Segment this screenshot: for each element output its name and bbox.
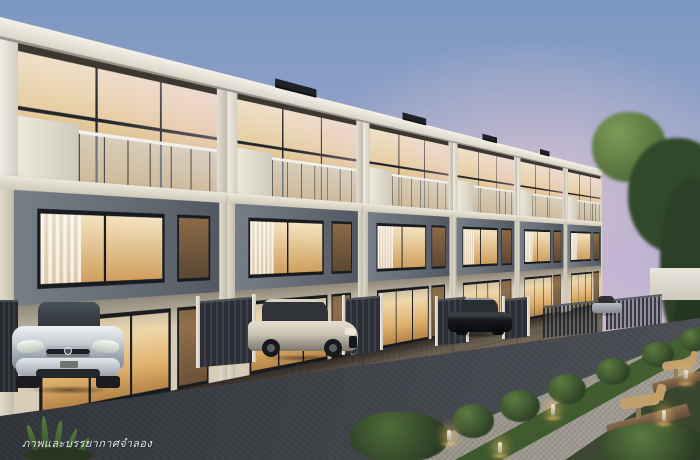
headlight [345,327,357,335]
balcony-parapet [521,189,533,216]
rider-head [654,383,667,401]
brand-emblem [64,347,72,355]
window-mullion [104,216,106,281]
curtain [250,221,273,274]
window-mullion [480,230,481,265]
balcony-column [601,176,603,221]
curtain [525,231,533,262]
bollard-light [684,370,688,379]
pilaster [363,212,368,282]
balcony-parapet [237,148,272,196]
wheel [456,326,468,335]
pilaster [453,217,456,276]
small-window [553,230,561,262]
balcony-column [517,157,520,215]
window-mullion [402,227,403,268]
pilaster [219,203,227,292]
grille [349,336,357,348]
hedge-bush [452,404,494,438]
spring-rider-toy [654,348,700,380]
townhome-render-scene: ภาพและบรรยากาศจำลอง [0,0,700,460]
bollard-light [447,430,451,441]
car-shadow [246,353,362,363]
small-window [593,232,599,261]
curtain [378,226,393,269]
rider-spring [636,408,641,419]
balcony-column [227,91,237,193]
third-floor-balcony [565,168,602,221]
wheel [96,376,120,388]
gate-post [196,296,200,368]
shrub [598,424,700,460]
balcony-parapet [369,167,392,205]
rider-spring [674,369,678,378]
champagne-sedan-car [248,295,358,365]
gate-post [380,293,383,350]
gate-post [435,296,438,346]
balcony-column [217,89,227,193]
glass-balustrade [577,200,601,222]
small-window [331,221,352,274]
second-floor [517,221,565,271]
shrub [350,412,448,460]
bedroom-window [248,217,323,278]
wheel [324,339,342,357]
pilaster [601,226,603,265]
balcony-parapet [568,196,577,220]
silver-convertible-car [12,300,124,392]
bedroom-window [524,229,550,264]
bedroom-window [462,227,497,268]
car-body [592,303,622,313]
small-window [431,225,445,269]
glass-balustrade [532,194,563,219]
second-floor [0,189,227,307]
bedroom-window [37,209,164,290]
small-window [177,214,210,281]
pilaster [227,203,235,291]
wheel [16,376,40,388]
bollard-light [551,404,555,415]
hedge-bush [500,390,540,422]
third-floor-balcony [517,157,565,219]
bollard-light [498,442,502,453]
balcony-column [565,168,568,219]
second-floor [453,217,517,276]
small-window [502,228,512,265]
pilaster [517,221,520,271]
second-floor [227,203,363,291]
hedge-bush [548,374,586,404]
wheel [262,339,280,357]
balcony-column [363,122,369,204]
spring-rider-toy [608,380,678,420]
window-mullion [287,223,288,273]
wheel [492,326,504,335]
curtain [463,229,474,265]
gate-post [527,295,530,336]
folding-gate [200,297,252,368]
black-coupe-car [448,298,512,338]
balcony-column [0,39,18,176]
bedroom-window [376,223,426,272]
pilaster [565,224,567,268]
second-floor [363,212,453,282]
second-floor [565,224,602,268]
balcony-parapet [18,116,79,181]
bedroom-window [571,231,591,262]
balcony-parapet [458,180,474,212]
watermark-text: ภาพและบรรยากาศจำลอง [22,434,152,452]
pilaster [0,189,14,307]
distant-gray-car [592,296,622,316]
curtain [571,233,577,260]
balcony-column [453,143,457,211]
glass-balustrade [473,185,514,215]
curtain [41,213,82,284]
license-plate [60,361,78,368]
rider-head [689,350,699,364]
mesh-fence [543,300,599,338]
bollard-light [662,410,666,421]
air-intake [36,369,100,378]
